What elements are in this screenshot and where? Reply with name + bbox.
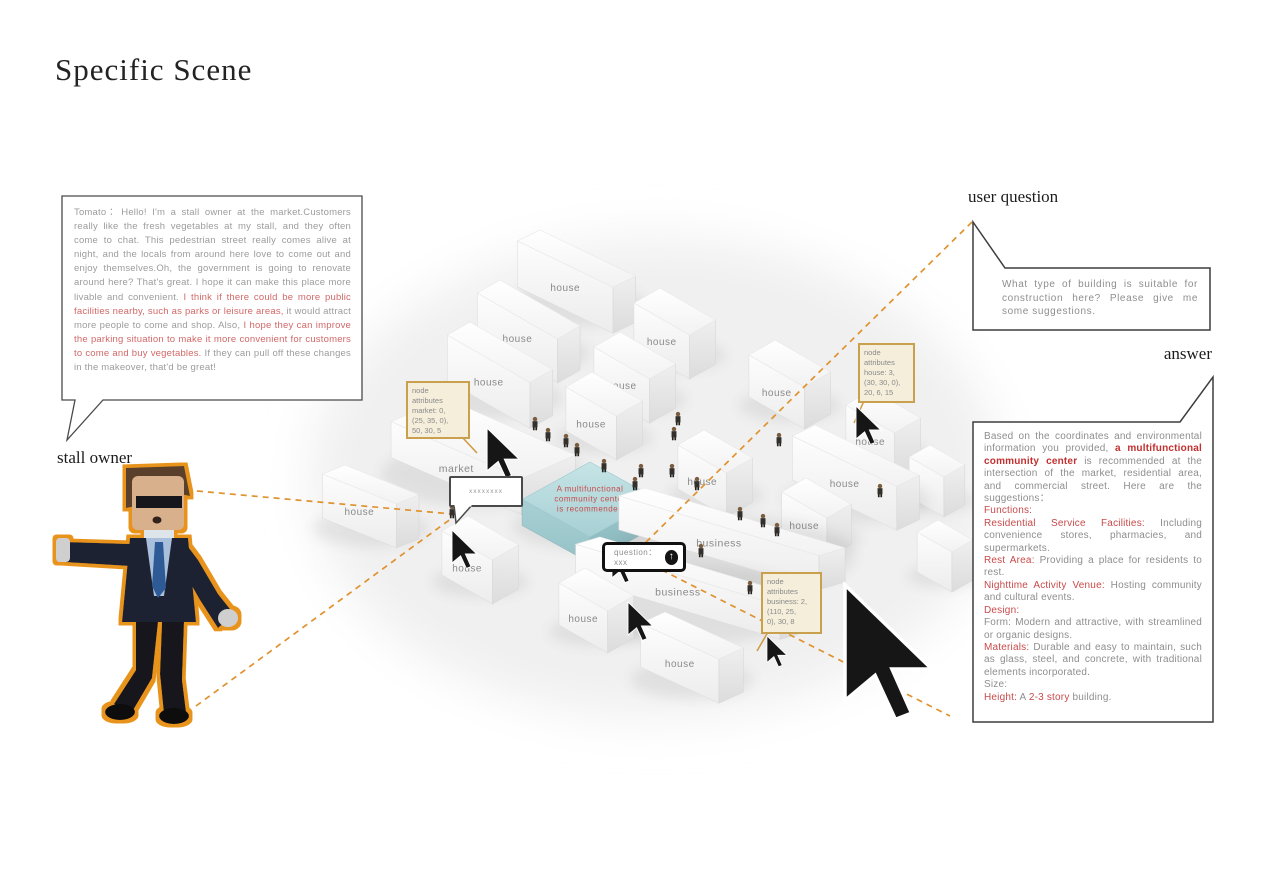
text-run: Functions:	[984, 505, 1032, 516]
user-question-text: What type of building is suitable for co…	[1002, 278, 1198, 319]
building-label: house	[576, 419, 606, 430]
text-run: Residential Service Facilities:	[984, 518, 1145, 529]
text-run: 2-3 story	[1029, 692, 1070, 703]
text-run: Design:	[984, 605, 1019, 616]
text-run: A	[1017, 692, 1029, 703]
building-label: house	[762, 388, 792, 399]
text-run: Height:	[984, 692, 1017, 703]
stall-owner-avatar	[56, 466, 238, 724]
stall-owner-dialog-text: Tomato：Hello! I'm a stall owner at the m…	[74, 206, 351, 375]
text-run: Materials:	[984, 642, 1029, 653]
question-input[interactable]: question：xxx ↑	[602, 542, 686, 572]
send-button[interactable]: ↑	[665, 550, 678, 565]
user-question-label: user question	[968, 187, 1058, 207]
page-title: Specific Scene	[55, 52, 252, 88]
building-label: house	[474, 378, 504, 389]
building-label: market	[439, 463, 474, 475]
building-label: house	[830, 479, 860, 490]
chat-bubble-tail	[453, 505, 479, 525]
building-label: business	[696, 537, 741, 549]
text-run: Rest Area:	[984, 555, 1035, 566]
stall-owner-label: stall owner	[57, 448, 132, 468]
building-label: A multifunctionalcommunity centeris reco…	[554, 484, 625, 513]
text-run: Nighttime Activity Venue:	[984, 580, 1105, 591]
node-attributes-business: node attributes business: 2, (110, 25, 0…	[761, 572, 822, 634]
building-label: house	[665, 659, 695, 670]
building-label: business	[655, 587, 700, 599]
text-run: building.	[1070, 692, 1112, 703]
building-label: house	[550, 283, 580, 294]
arrow-up-icon: ↑	[669, 552, 674, 562]
text-run: Size:	[984, 679, 1007, 690]
building-label: house	[647, 337, 677, 348]
node-attributes-market: node attributes market: 0, (25, 35, 0), …	[406, 381, 470, 439]
building-label: house	[568, 614, 598, 625]
text-run: Tomato：Hello! I'm a stall owner at the m…	[74, 207, 351, 303]
building-label: house	[344, 507, 374, 518]
chat-bubble: xxxxxxxx	[449, 476, 523, 507]
answer-text: Based on the coordinates and environment…	[984, 431, 1202, 704]
text-run: Form: Modern and attractive, with stream…	[984, 617, 1202, 640]
figure-canvas: househousehousehousehousehousehousehouse…	[0, 0, 1268, 896]
answer-label: answer	[1090, 344, 1212, 364]
node-attributes-house: node attributes house: 3, (30, 30, 0), 2…	[858, 343, 915, 403]
question-input-text: question：xxx	[614, 547, 665, 567]
